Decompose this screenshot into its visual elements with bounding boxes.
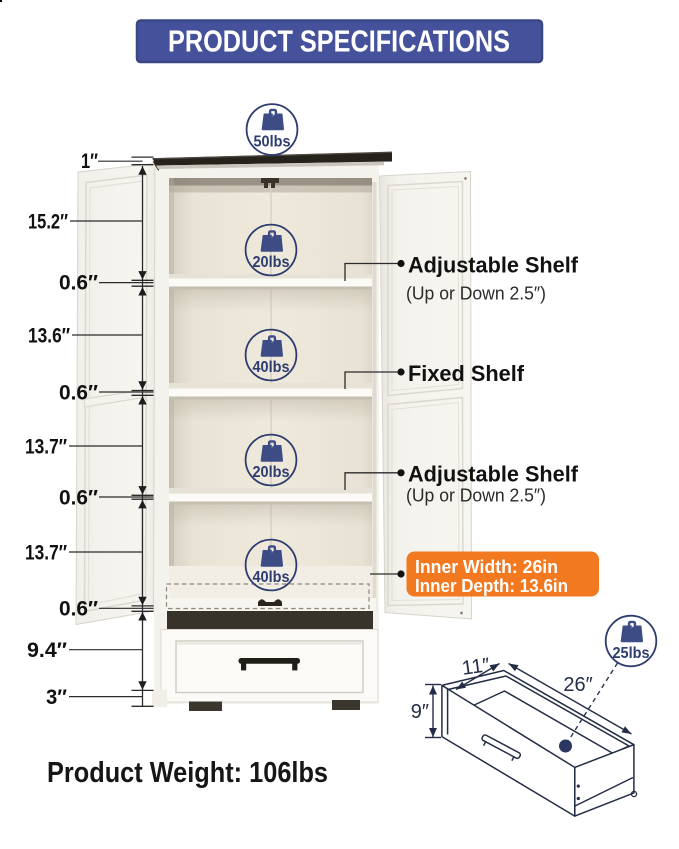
svg-text:11″: 11″ bbox=[461, 654, 492, 680]
svg-text:13.6″: 13.6″ bbox=[28, 325, 70, 348]
svg-text:0.6″: 0.6″ bbox=[59, 272, 98, 295]
svg-text:50lbs: 50lbs bbox=[254, 134, 291, 151]
svg-text:Product Weight: 106lbs: Product Weight: 106lbs bbox=[47, 757, 328, 789]
svg-text:(Up or Down 2.5″): (Up or Down 2.5″) bbox=[406, 486, 546, 506]
svg-text:3″: 3″ bbox=[46, 686, 67, 709]
svg-text:0.6″: 0.6″ bbox=[59, 487, 98, 510]
svg-text:13.7″: 13.7″ bbox=[25, 542, 67, 565]
svg-text:40lbs: 40lbs bbox=[253, 359, 290, 376]
svg-text:1″: 1″ bbox=[81, 150, 98, 173]
svg-text:0.6″: 0.6″ bbox=[59, 598, 98, 621]
svg-text:15.2″: 15.2″ bbox=[28, 211, 68, 234]
svg-text:20lbs: 20lbs bbox=[253, 464, 290, 481]
svg-text:13.7″: 13.7″ bbox=[25, 436, 67, 459]
svg-text:Adjustable Shelf: Adjustable Shelf bbox=[408, 253, 579, 278]
svg-text:Fixed Shelf: Fixed Shelf bbox=[408, 361, 525, 386]
svg-text:(Up or Down 2.5″): (Up or Down 2.5″) bbox=[406, 284, 546, 304]
svg-text:0.6″: 0.6″ bbox=[59, 382, 98, 405]
svg-text:9.4″: 9.4″ bbox=[27, 639, 67, 662]
svg-text:20lbs: 20lbs bbox=[253, 254, 290, 271]
svg-text:Inner Width: 26in: Inner Width: 26in bbox=[415, 557, 558, 577]
svg-text:40lbs: 40lbs bbox=[253, 569, 290, 586]
svg-text:Inner Depth: 13.6in: Inner Depth: 13.6in bbox=[415, 576, 568, 596]
svg-text:Adjustable Shelf: Adjustable Shelf bbox=[408, 462, 579, 487]
svg-text:PRODUCT SPECIFICATIONS: PRODUCT SPECIFICATIONS bbox=[168, 24, 510, 59]
svg-text:9″: 9″ bbox=[411, 701, 429, 723]
svg-text:26″: 26″ bbox=[563, 674, 592, 696]
svg-text:25lbs: 25lbs bbox=[613, 645, 650, 662]
